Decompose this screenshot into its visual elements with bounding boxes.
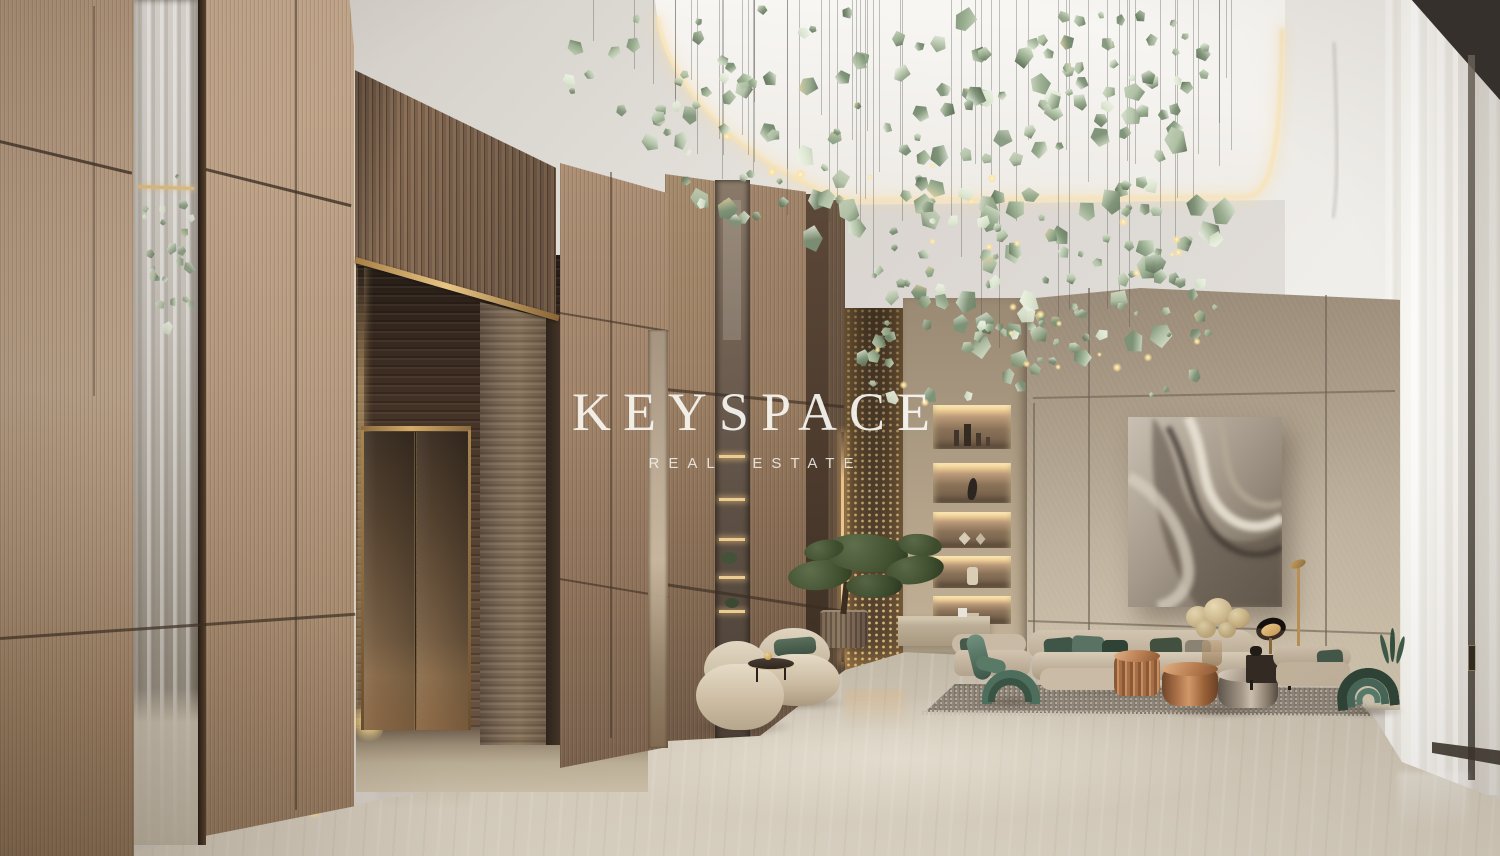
travertine-column: [480, 302, 546, 745]
flower-vase: [1202, 640, 1222, 666]
window-mullion: [1468, 55, 1475, 780]
backlit-niche: [933, 556, 1011, 588]
crystal-piece: [164, 241, 180, 257]
crystal-piece: [176, 256, 185, 266]
reflected-floor: [134, 688, 198, 845]
crystal-piece: [170, 297, 179, 307]
reflected-niche-glow: [719, 498, 745, 501]
crystal-piece: [181, 259, 197, 276]
bolster-sofa-seat: [1276, 662, 1350, 686]
console-leg: [1250, 680, 1253, 690]
crystal-piece: [145, 248, 155, 259]
side-table-top: [748, 658, 794, 669]
backlit-niche: [933, 463, 1011, 503]
bonsai-planter: [820, 610, 868, 648]
panel-joint: [295, 0, 297, 810]
floor-reflection: [1398, 772, 1468, 832]
crystal-piece: [149, 271, 159, 282]
reflected-plant: [721, 552, 737, 564]
crystal-piece: [142, 214, 148, 220]
crystal-piece: [158, 204, 167, 214]
door-floor-reflection: [364, 640, 468, 730]
flower-bloom: [1218, 622, 1236, 638]
niche-bottle: [976, 433, 981, 446]
brand-watermark: KEYSPACE REAL ESTATE: [560, 381, 942, 472]
floor-reflection: [845, 690, 905, 730]
niche-bottle: [954, 430, 959, 446]
reflected-plant: [725, 598, 739, 608]
niche-faceted-stone: [959, 532, 971, 545]
window-glass-panel: [1458, 0, 1500, 795]
boucle-armchair-seat: [696, 664, 784, 730]
abstract-metal-artwork: [1128, 417, 1282, 607]
crystal-piece: [154, 300, 165, 309]
elevator-frame: [468, 430, 471, 730]
crystal-piece: [176, 197, 191, 212]
crystal-piece: [186, 299, 195, 309]
crystal-piece: [176, 244, 187, 256]
door-handle: [1469, 646, 1475, 670]
crystal-piece: [159, 218, 168, 227]
crystal-piece: [182, 295, 191, 303]
copper-ribbon-table-top: [1114, 650, 1160, 662]
plant-leaf: [1390, 628, 1395, 662]
crystal-piece: [153, 274, 161, 283]
crystal-piece: [161, 320, 175, 336]
mirror-inlay-left: [134, 0, 198, 845]
wood-pillar-left: [206, 0, 354, 840]
gold-sphere-decor: [764, 652, 772, 660]
mirror-reflection-light: [723, 200, 741, 340]
wood-wall-left: [0, 0, 134, 856]
bowl-lamp-stem: [1269, 638, 1272, 654]
backlit-niche: [933, 405, 1011, 449]
crystal-piece: [161, 275, 169, 283]
elevator-lintel-brass: [361, 426, 471, 431]
side-table-leg: [756, 668, 758, 682]
console-decor: [1250, 646, 1262, 656]
crystal-piece: [179, 227, 190, 238]
niche-vase: [967, 567, 978, 585]
display-niche-column: [903, 298, 1027, 656]
niche-faceted-stone: [976, 533, 986, 545]
niche-bottle: [986, 437, 990, 446]
brand-name: KEYSPACE: [560, 381, 942, 443]
crystal-piece: [187, 213, 196, 223]
niche-bottle: [964, 424, 971, 446]
brand-tagline: REAL ESTATE: [560, 455, 942, 472]
bench-object: [958, 608, 967, 617]
crystal-piece: [175, 173, 181, 179]
wall-groove-vertical: [1325, 295, 1327, 700]
lobby-render: KEYSPACE REAL ESTATE: [0, 0, 1500, 856]
reflected-niche-glow: [719, 576, 745, 579]
reflected-niche-glow: [719, 538, 745, 541]
niche-sculpture: [966, 477, 978, 500]
crystal-piece: [148, 264, 157, 272]
bonsai-foliage: [846, 574, 902, 598]
side-table-leg: [784, 668, 786, 680]
reflected-niche-glow: [719, 610, 745, 613]
panel-joint: [93, 6, 95, 396]
crystal-piece: [140, 204, 150, 214]
panel-gap: [198, 0, 206, 845]
backlit-niche: [933, 512, 1011, 548]
flower-bloom: [1196, 620, 1216, 638]
